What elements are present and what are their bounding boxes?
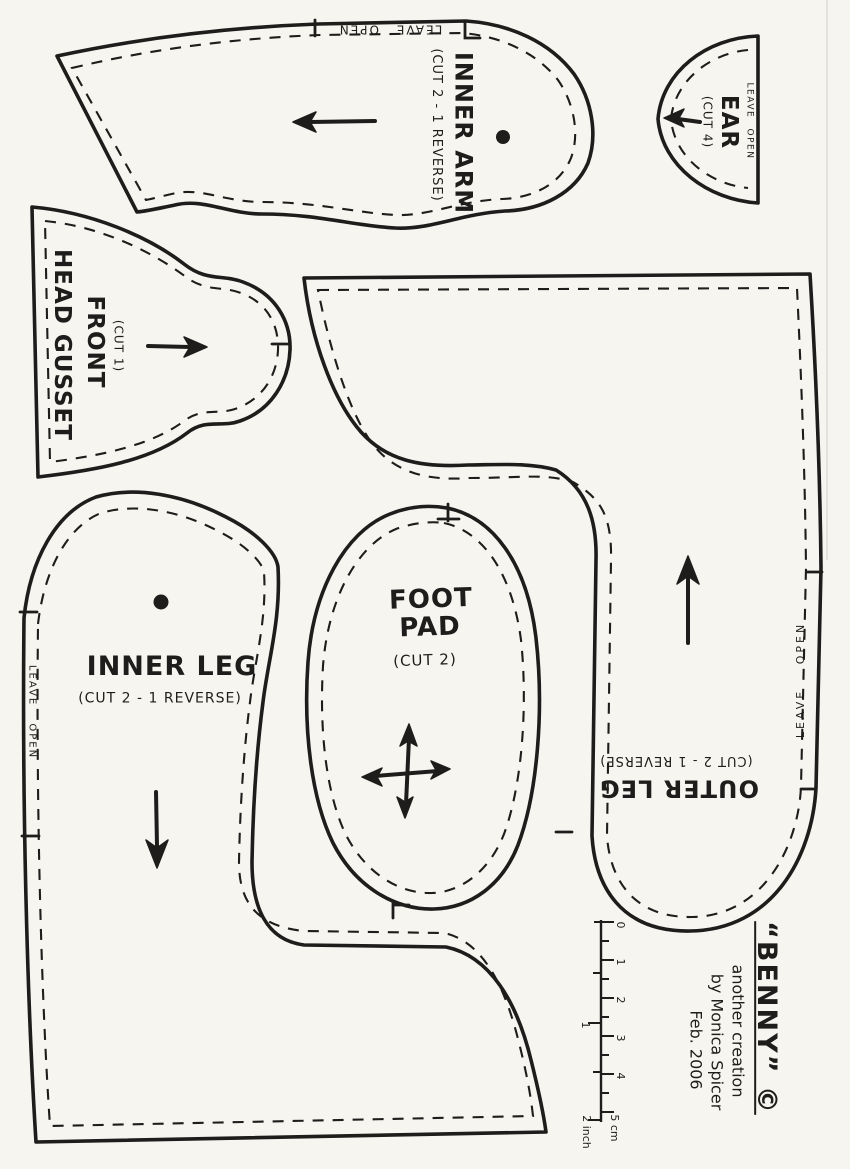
head-gusset-grain-arrow — [148, 337, 207, 357]
inner-arm-joint-dot — [496, 130, 510, 144]
ruler-cm-end: 5 cm — [608, 1114, 620, 1141]
ruler-inch-1: 1 — [579, 1022, 591, 1029]
head-gusset-cut-label: (CUT 1) — [112, 320, 125, 372]
ear-leave-open-label: LEAVE OPEN — [744, 83, 753, 160]
foot-pad-seam — [322, 522, 524, 893]
ear-label: EAR — [717, 95, 741, 149]
ruler-cm-2: 2 — [614, 997, 626, 1004]
outer-leg-leave-open-label: LEAVE OPEN — [795, 622, 807, 738]
head-gusset-seam — [45, 221, 278, 462]
inner-arm-label: INNER ARM — [450, 52, 475, 214]
inner-leg-label: INNER LEG — [87, 653, 258, 681]
inner-leg-cut-label: (CUT 2 - 1 REVERSE) — [78, 692, 242, 707]
head-gusset-label-line2: FRONT — [83, 296, 107, 389]
inner-arm-seam — [72, 33, 575, 215]
inner-arm-grain-arrow — [293, 112, 375, 132]
outer-leg-piece — [304, 274, 822, 931]
foot-pad-label-line2: PAD — [399, 613, 461, 642]
head-gusset-label-line1: HEAD GUSSET — [50, 249, 74, 441]
inner-leg-leave-open-label: LEAVE OPEN — [26, 665, 37, 759]
pattern-title: “BENNY” © — [752, 921, 780, 1115]
inner-arm-cut-label: (CUT 2 - 1 REVERSE) — [429, 48, 443, 201]
outer-leg-cut-label: (CUT 2 - 1 REVERSE) — [599, 753, 752, 767]
credit-line-1: another creation — [729, 965, 746, 1098]
inner-arm-piece — [57, 20, 593, 228]
ear-grain-arrow — [664, 109, 700, 127]
inner-leg-joint-dot — [154, 595, 169, 610]
outer-leg-label: OUTER LEG — [599, 775, 759, 800]
ruler-inch-end: 2 inch — [580, 1115, 592, 1149]
foot-pad-label-line1: FOOT — [389, 585, 474, 615]
ear-cut-label: (CUT 4) — [701, 96, 714, 148]
foot-pad-piece — [307, 504, 540, 918]
inner-leg-grain-arrow — [146, 792, 168, 868]
inner-arm-outline — [57, 21, 593, 228]
ruler-cm-4: 4 — [614, 1073, 626, 1080]
outer-leg-grain-arrow — [677, 556, 699, 643]
credit-line-2: by Monica Spicer — [708, 974, 725, 1111]
ruler-cm-0: 0 — [614, 922, 626, 929]
ruler-cm-1: 1 — [614, 959, 626, 966]
foot-pad-cut-label: (CUT 2) — [393, 652, 457, 670]
foot-pad-cross-arrows — [362, 724, 450, 818]
inner-arm-leave-open-label: LEAVE OPEN — [338, 23, 443, 36]
ruler-cm-3: 3 — [614, 1035, 626, 1042]
foot-pad-outline — [307, 506, 540, 909]
credit-line-3: Feb. 2006 — [687, 1010, 704, 1089]
pattern-sheet: INNER ARM (CUT 2 - 1 REVERSE) LEAVE OPEN… — [0, 0, 850, 1169]
scale-ruler — [588, 920, 614, 1122]
